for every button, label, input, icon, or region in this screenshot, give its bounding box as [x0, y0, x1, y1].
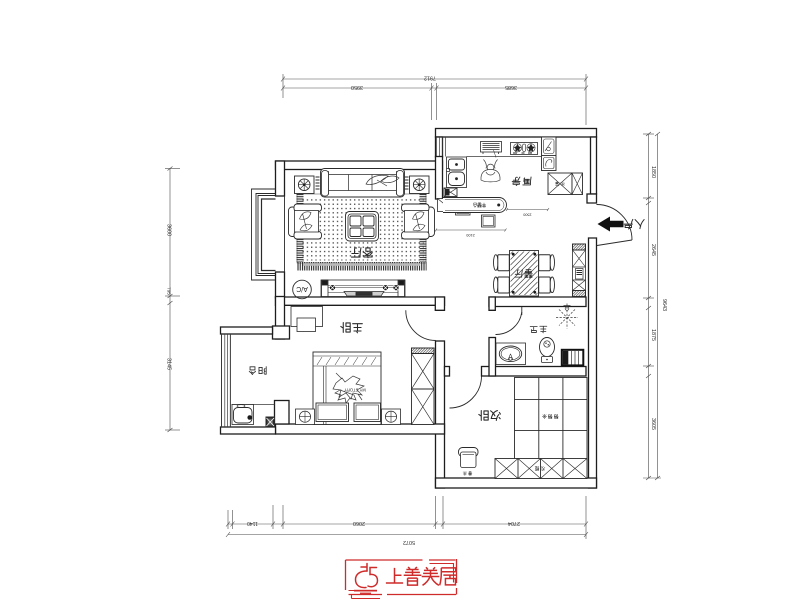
svg-text:3605: 3605 — [650, 418, 656, 430]
svg-text:MY STORY: MY STORY — [344, 388, 366, 393]
svg-text:5072: 5072 — [403, 539, 415, 545]
svg-text:3145: 3145 — [166, 358, 172, 370]
svg-text:1850: 1850 — [650, 166, 656, 178]
svg-text:1140: 1140 — [247, 520, 258, 526]
svg-text:2645: 2645 — [650, 244, 656, 256]
svg-text:3600: 3600 — [166, 224, 172, 236]
svg-text:1500: 1500 — [523, 213, 531, 217]
svg-text:9643: 9643 — [661, 299, 667, 311]
svg-text:3685: 3685 — [505, 84, 517, 90]
svg-text:2704: 2704 — [508, 520, 520, 526]
svg-text:1875: 1875 — [650, 329, 656, 341]
svg-text:2060: 2060 — [353, 520, 365, 526]
svg-text:2100: 2100 — [466, 233, 474, 237]
svg-text:7912: 7912 — [424, 75, 436, 81]
svg-text:A/C: A/C — [296, 285, 308, 292]
svg-text:3950: 3950 — [351, 84, 363, 90]
svg-text:795: 795 — [167, 287, 172, 295]
